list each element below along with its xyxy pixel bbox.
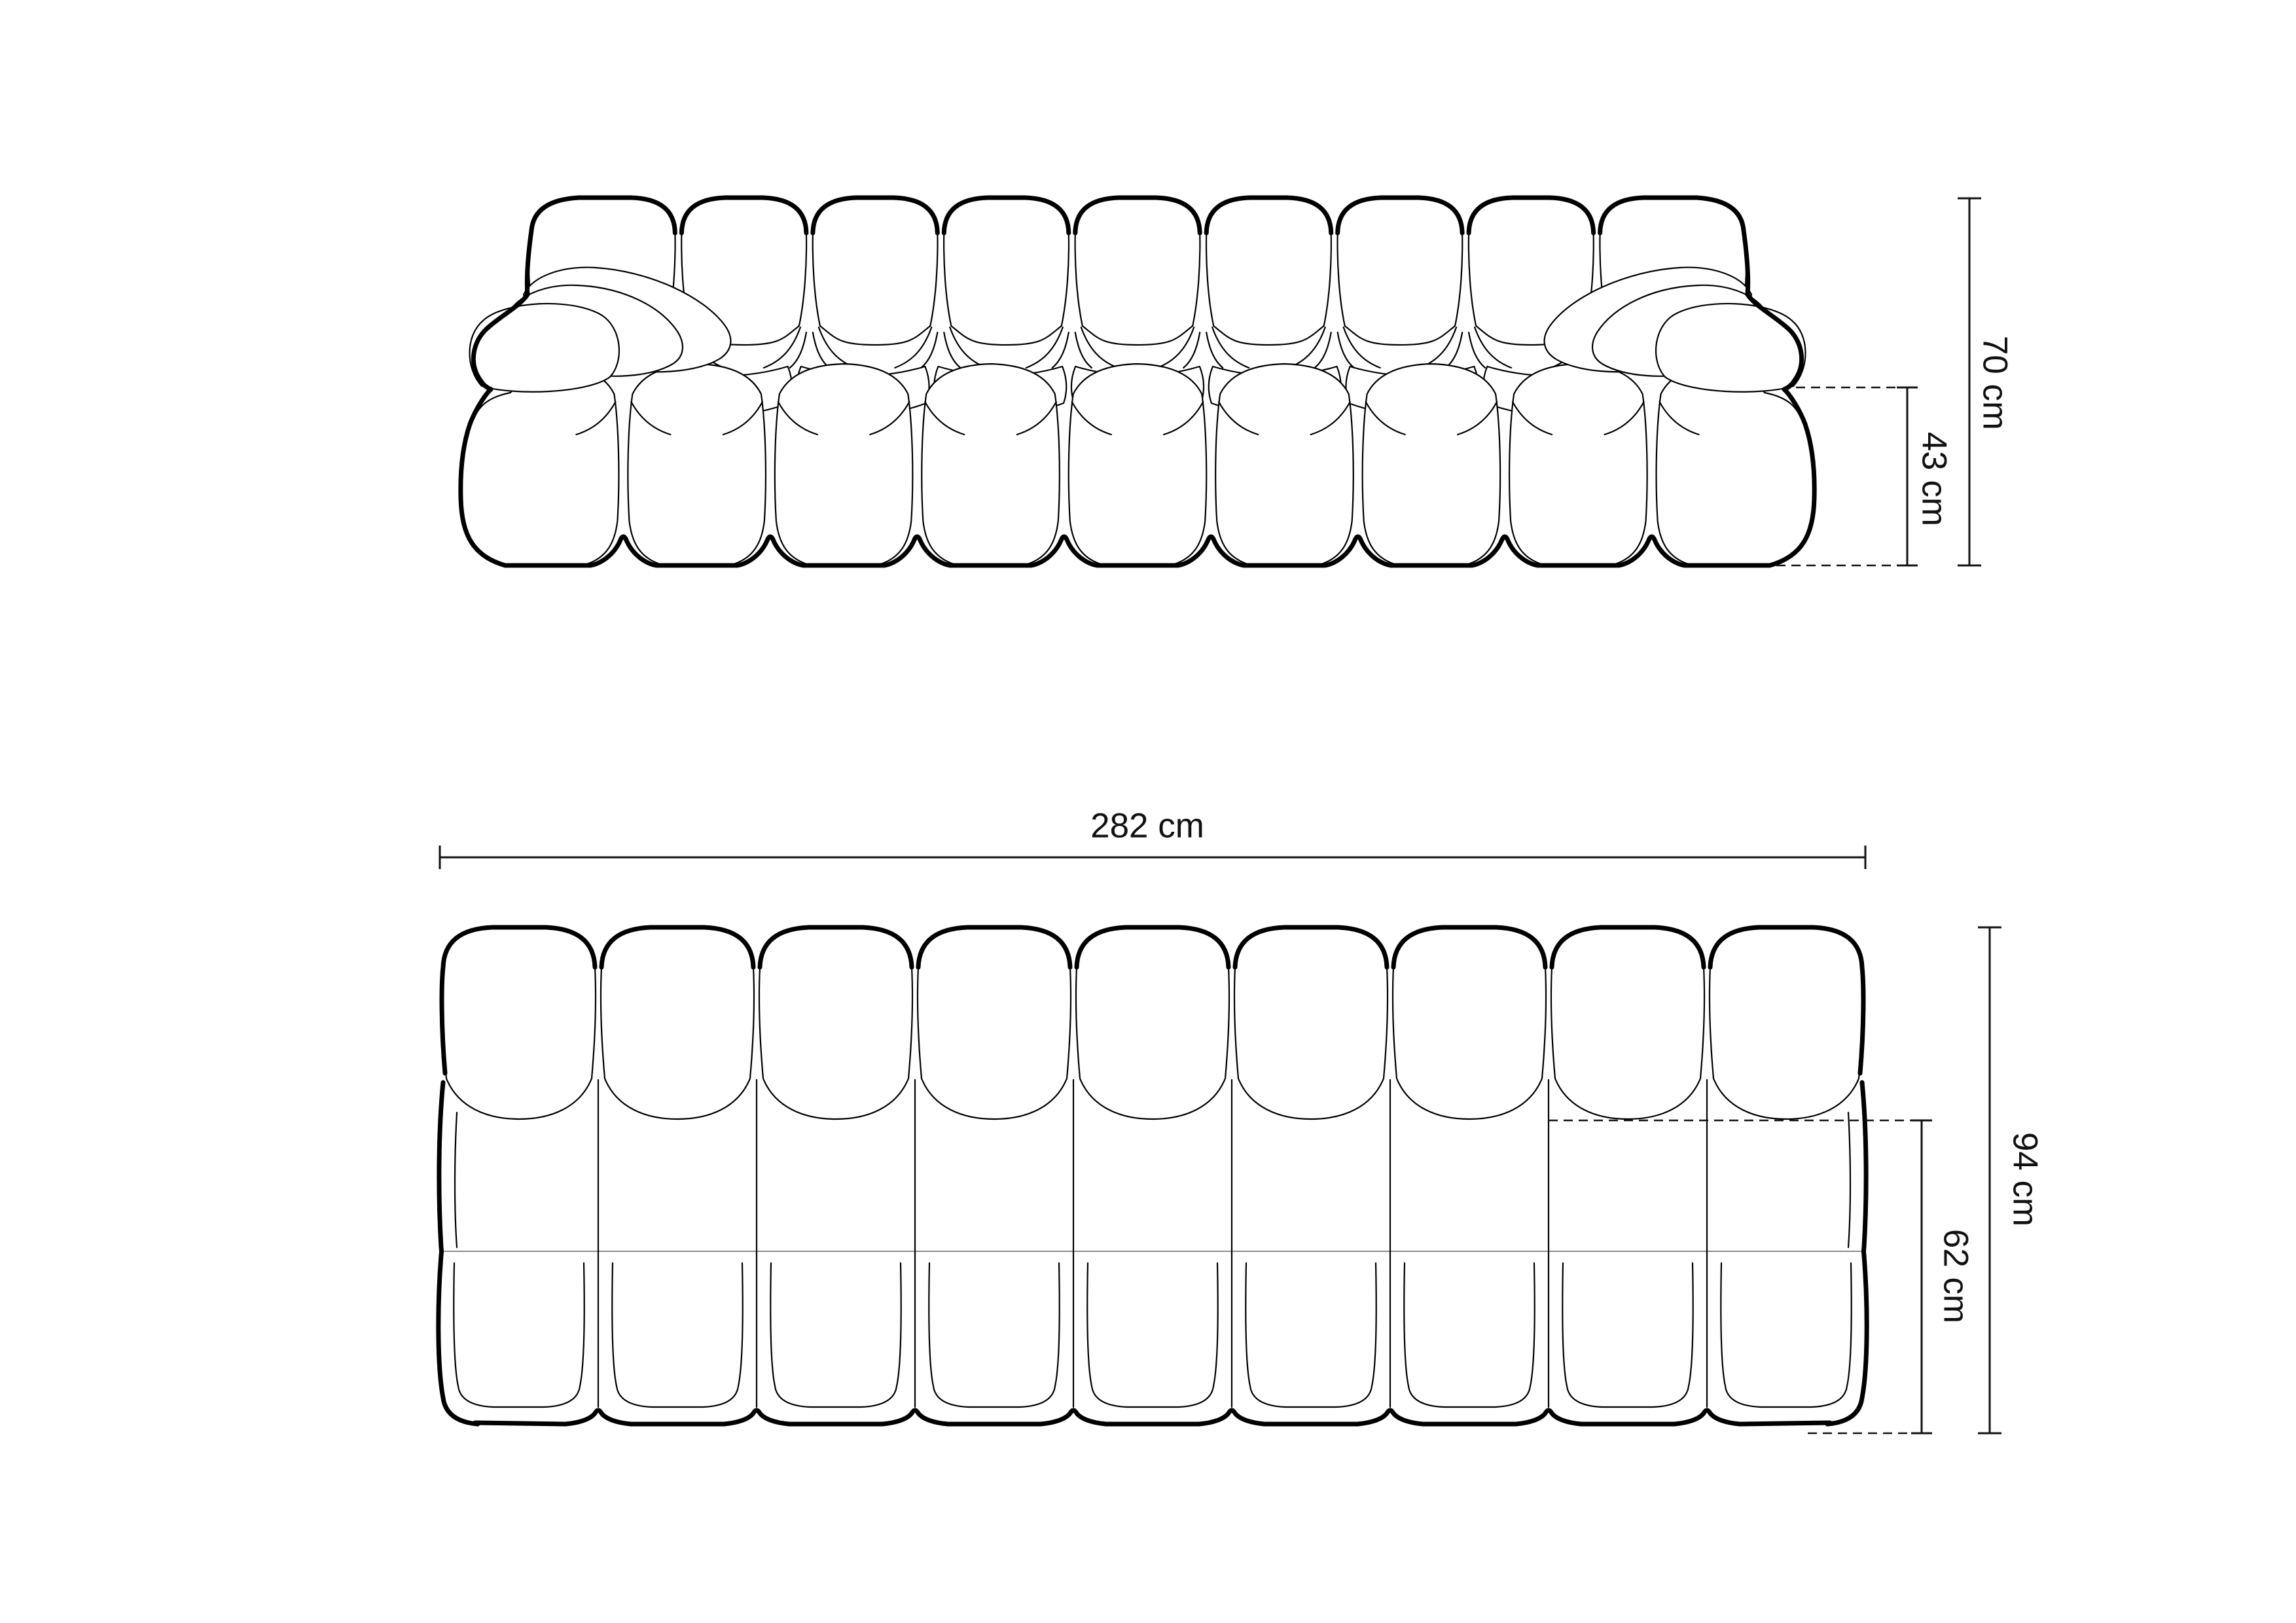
tuft-web-curve [1183,332,1200,368]
dim-label-seat-depth: 62 cm [1937,1229,1975,1323]
plan-back-cushion [759,927,912,1119]
back-cushion [944,198,1069,345]
tuft-web-curve [813,332,829,368]
plan-back-cushion [1393,927,1546,1119]
front-base-cushions [461,364,1814,564]
base-cushion [1363,364,1500,564]
plan-back-cushion [442,927,596,1119]
tuft-web-curve [1446,332,1462,368]
plan-back-cushions [442,927,1863,1119]
tuft-web-curve [944,332,960,368]
dim-label-total-depth: 94 cm [2006,1132,2045,1226]
left-armrest-front-lobe [470,304,619,392]
front-elevation-view [461,198,1814,565]
dim-label-total-width: 282 cm [1090,807,1204,846]
sofa-dimension-diagram: 70 cm 43 cm 282 cm 94 cm 62 cm [0,0,2296,1623]
dim-line-total-depth [1978,927,2001,1433]
tuft-web-curve [1206,332,1223,368]
tuft-web-curve [1075,332,1092,368]
dim-label-total-height: 70 cm [1976,336,2015,430]
tuft-web-curve [1469,332,1485,368]
plan-back-cushion [918,927,1071,1119]
tuft-web-curve [1315,332,1331,368]
dim-line-seat-depth [1911,1120,1932,1433]
plan-back-cushion [1076,927,1229,1119]
top-plan-view [439,927,1867,1424]
back-cushion [1206,198,1331,345]
plan-back-cushion [1234,927,1388,1119]
tuft-web-curve [790,332,806,368]
tuft-web-curve [1052,332,1069,368]
tuft-web-curve [921,332,937,368]
right-armrest-front-lobe [1656,304,1805,392]
back-cushion [1075,198,1200,345]
dim-line-total-width [440,846,1865,869]
back-cushion [813,198,938,345]
base-cushion [628,364,766,564]
plan-seat-body [439,1080,1866,1424]
back-cushion [1338,198,1463,345]
tuft-web-curve [1338,332,1354,368]
base-cushion [1069,364,1206,564]
base-cushion [922,364,1060,564]
dim-label-seat-height: 43 cm [1915,432,1954,526]
plan-back-cushion [1551,927,1704,1119]
dim-line-seat-height [1897,387,1918,565]
diagram-page: 70 cm 43 cm 282 cm 94 cm 62 cm [0,0,2296,1623]
base-cushion [1215,364,1354,564]
base-cushion [775,364,912,564]
plan-back-cushion [601,927,754,1119]
plan-back-cushion [1710,927,1863,1119]
base-cushion [1509,364,1647,564]
